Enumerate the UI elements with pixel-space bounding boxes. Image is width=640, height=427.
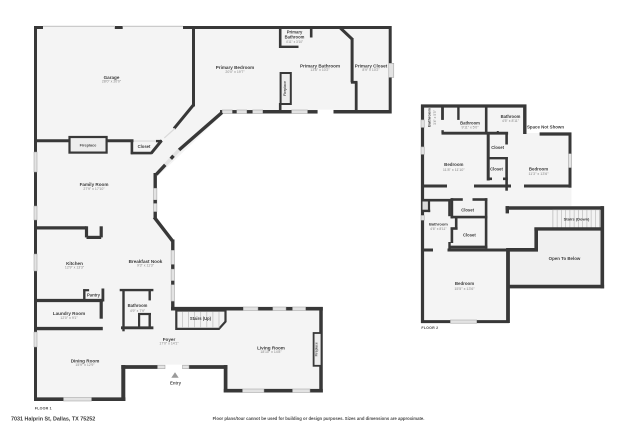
svg-text:15'9" x 12'9": 15'9" x 12'9" (75, 363, 95, 367)
svg-text:Closet: Closet (491, 145, 504, 150)
svg-text:20'0" x 19'7": 20'0" x 19'7" (225, 70, 245, 74)
svg-text:17'0" x 14'1": 17'0" x 14'1" (159, 342, 179, 346)
svg-text:Entry: Entry (170, 380, 182, 385)
svg-text:Bedroom: Bedroom (529, 166, 548, 171)
svg-text:28'0" x 20'0": 28'0" x 20'0" (102, 80, 122, 84)
svg-text:12'9" x 13'3": 12'9" x 13'3" (65, 266, 85, 270)
svg-text:7031 Halprin St, Dallas, TX 75: 7031 Halprin St, Dallas, TX 75252 (11, 416, 95, 422)
svg-text:Pantry: Pantry (87, 292, 101, 297)
svg-text:Bathroom: Bathroom (429, 222, 448, 227)
svg-text:Closet: Closet (138, 144, 151, 149)
svg-text:Fireplace: Fireplace (315, 342, 319, 356)
svg-text:Space Not Shown: Space Not Shown (527, 125, 564, 130)
svg-text:11'8" x 11'10": 11'8" x 11'10" (443, 168, 465, 172)
svg-text:Bathroom: Bathroom (427, 108, 432, 127)
svg-text:13'6" x 10'2": 13'6" x 10'2" (310, 68, 330, 72)
svg-text:12'0" x 9'1": 12'0" x 9'1" (60, 316, 78, 320)
svg-text:Fireplace: Fireplace (80, 144, 97, 148)
svg-text:9'11" x 5'0": 9'11" x 5'0" (462, 126, 480, 130)
svg-text:18'10" x 14'8": 18'10" x 14'8" (260, 350, 282, 354)
svg-text:27'9" x 17'10": 27'9" x 17'10" (83, 187, 105, 191)
svg-text:FLOOR 2: FLOOR 2 (421, 326, 438, 330)
svg-text:9'3" x 11'3": 9'3" x 11'3" (137, 264, 155, 268)
svg-text:Bathroom: Bathroom (128, 303, 148, 308)
svg-text:Bathroom: Bathroom (285, 34, 305, 39)
svg-text:Stairs (Up): Stairs (Up) (190, 316, 212, 321)
svg-text:4'9" x 7'9": 4'9" x 7'9" (130, 309, 146, 313)
svg-text:Bedroom: Bedroom (444, 162, 463, 167)
svg-text:3'4" x 5'5": 3'4" x 5'5" (433, 109, 437, 125)
svg-text:Open To Below: Open To Below (549, 256, 581, 261)
svg-text:4'6" x 8'11": 4'6" x 8'11" (430, 227, 447, 231)
svg-text:Floor plans/tour cannot be use: Floor plans/tour cannot be used for buil… (213, 416, 425, 421)
svg-text:Closet: Closet (461, 208, 474, 213)
svg-text:Bedroom: Bedroom (455, 281, 474, 286)
svg-text:4'5" x 8'11": 4'5" x 8'11" (502, 119, 520, 123)
svg-text:15'5" x 13'6": 15'5" x 13'6" (454, 287, 475, 291)
svg-text:Bathroom: Bathroom (501, 114, 521, 119)
svg-text:8'9" x 10'2": 8'9" x 10'2" (362, 68, 380, 72)
svg-text:11'3" x 13'6": 11'3" x 13'6" (529, 172, 550, 176)
svg-text:4'11" x 3'10": 4'11" x 3'10" (286, 40, 303, 44)
svg-text:Closet: Closet (463, 233, 476, 238)
svg-text:FLOOR 1: FLOOR 1 (35, 407, 52, 411)
svg-text:Stairs (Down): Stairs (Down) (564, 216, 590, 221)
svg-text:Bathroom: Bathroom (460, 120, 480, 125)
svg-text:Fireplace: Fireplace (283, 81, 287, 96)
svg-text:Closet: Closet (490, 167, 503, 172)
